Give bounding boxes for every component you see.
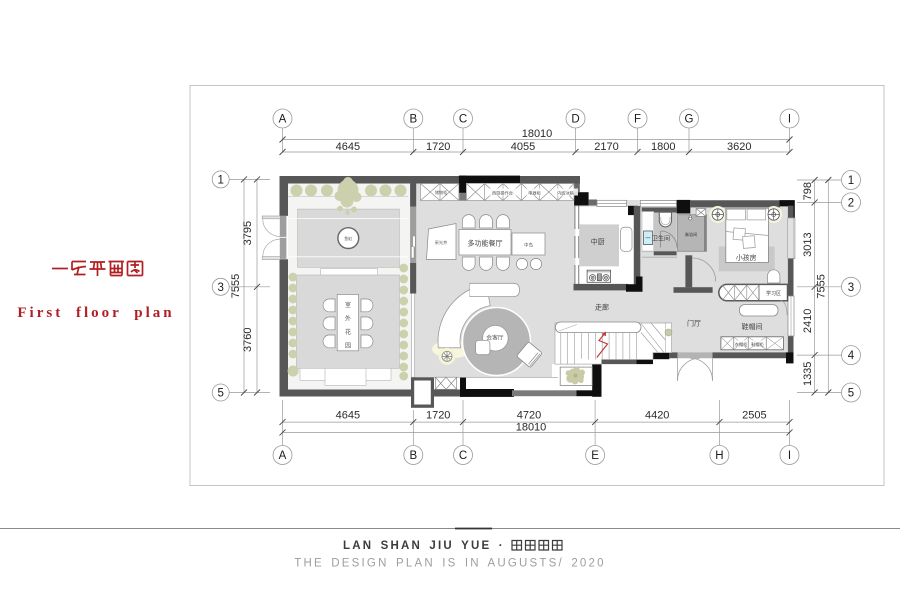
- svg-text:First floor plan: First floor plan: [17, 305, 174, 321]
- svg-text:2505: 2505: [742, 410, 766, 422]
- svg-text:3620: 3620: [727, 141, 751, 153]
- svg-text:3795: 3795: [242, 221, 254, 245]
- svg-text:LAN SHAN JIU YUE ·: LAN SHAN JIU YUE ·: [343, 540, 505, 552]
- svg-text:4420: 4420: [645, 410, 669, 422]
- svg-text:1720: 1720: [426, 141, 450, 153]
- svg-text:7555: 7555: [816, 274, 828, 298]
- svg-text:B: B: [409, 450, 417, 462]
- svg-text:H: H: [715, 450, 723, 462]
- svg-text:5: 5: [217, 388, 223, 400]
- svg-text:7555: 7555: [230, 274, 242, 298]
- svg-text:B: B: [409, 114, 417, 126]
- svg-text:3: 3: [217, 282, 223, 294]
- svg-text:G: G: [685, 114, 694, 126]
- svg-text:4645: 4645: [336, 141, 360, 153]
- svg-text:A: A: [279, 450, 287, 462]
- svg-text:I: I: [788, 114, 791, 126]
- svg-text:内嵌冰箱: 内嵌冰箱: [557, 190, 574, 197]
- svg-text:采光井: 采光井: [435, 239, 448, 246]
- svg-text:1335: 1335: [802, 362, 814, 386]
- svg-text:THE DESIGN PLAN IS IN AUGUSTS/: THE DESIGN PLAN IS IN AUGUSTS/ 2020: [294, 558, 605, 570]
- svg-text:鞋帽柜: 鞋帽柜: [751, 341, 764, 348]
- svg-text:4: 4: [848, 350, 855, 362]
- svg-text:外: 外: [345, 315, 351, 323]
- svg-text:3760: 3760: [242, 327, 254, 351]
- svg-text:西厨操作台: 西厨操作台: [492, 190, 513, 197]
- svg-text:花: 花: [345, 328, 351, 336]
- svg-text:3013: 3013: [802, 232, 814, 256]
- svg-text:多功能餐厅: 多功能餐厅: [468, 239, 503, 248]
- svg-text:4055: 4055: [511, 141, 535, 153]
- svg-text:4720: 4720: [517, 410, 541, 422]
- svg-text:中厨: 中厨: [591, 237, 605, 246]
- svg-text:衣帽柜: 衣帽柜: [735, 341, 748, 348]
- svg-text:淋浴间: 淋浴间: [685, 231, 698, 238]
- svg-text:卫生间: 卫生间: [652, 235, 670, 243]
- svg-text:2410: 2410: [802, 309, 814, 333]
- svg-text:1800: 1800: [651, 141, 675, 153]
- svg-text:C: C: [459, 450, 467, 462]
- svg-text:鱼缸: 鱼缸: [344, 235, 352, 241]
- svg-text:18010: 18010: [522, 128, 553, 140]
- svg-text:门厅: 门厅: [687, 319, 701, 328]
- svg-text:学习区: 学习区: [766, 290, 781, 297]
- svg-text:1: 1: [217, 174, 223, 186]
- svg-text:会客厅: 会客厅: [486, 334, 504, 342]
- svg-text:走廊: 走廊: [595, 303, 609, 312]
- svg-text:4645: 4645: [336, 410, 360, 422]
- svg-text:1720: 1720: [426, 410, 450, 422]
- svg-text:5: 5: [848, 388, 854, 400]
- svg-text:I: I: [788, 450, 791, 462]
- svg-text:D: D: [571, 114, 579, 126]
- svg-text:E: E: [591, 450, 599, 462]
- svg-text:18010: 18010: [516, 421, 547, 433]
- svg-text:室: 室: [345, 301, 351, 309]
- svg-text:中岛: 中岛: [524, 242, 533, 249]
- svg-text:电器柜: 电器柜: [528, 190, 541, 197]
- svg-text:798: 798: [802, 182, 814, 200]
- svg-text:3: 3: [848, 282, 854, 294]
- svg-text:A: A: [279, 114, 287, 126]
- svg-text:园: 园: [345, 343, 351, 350]
- svg-text:F: F: [634, 114, 641, 126]
- svg-text:鞋帽间: 鞋帽间: [742, 322, 763, 331]
- svg-text:1: 1: [848, 175, 854, 187]
- svg-text:2: 2: [848, 197, 854, 209]
- svg-text:储物柜: 储物柜: [435, 189, 448, 196]
- svg-text:C: C: [459, 114, 467, 126]
- svg-text:小孩房: 小孩房: [736, 253, 757, 262]
- svg-text:2170: 2170: [594, 141, 618, 153]
